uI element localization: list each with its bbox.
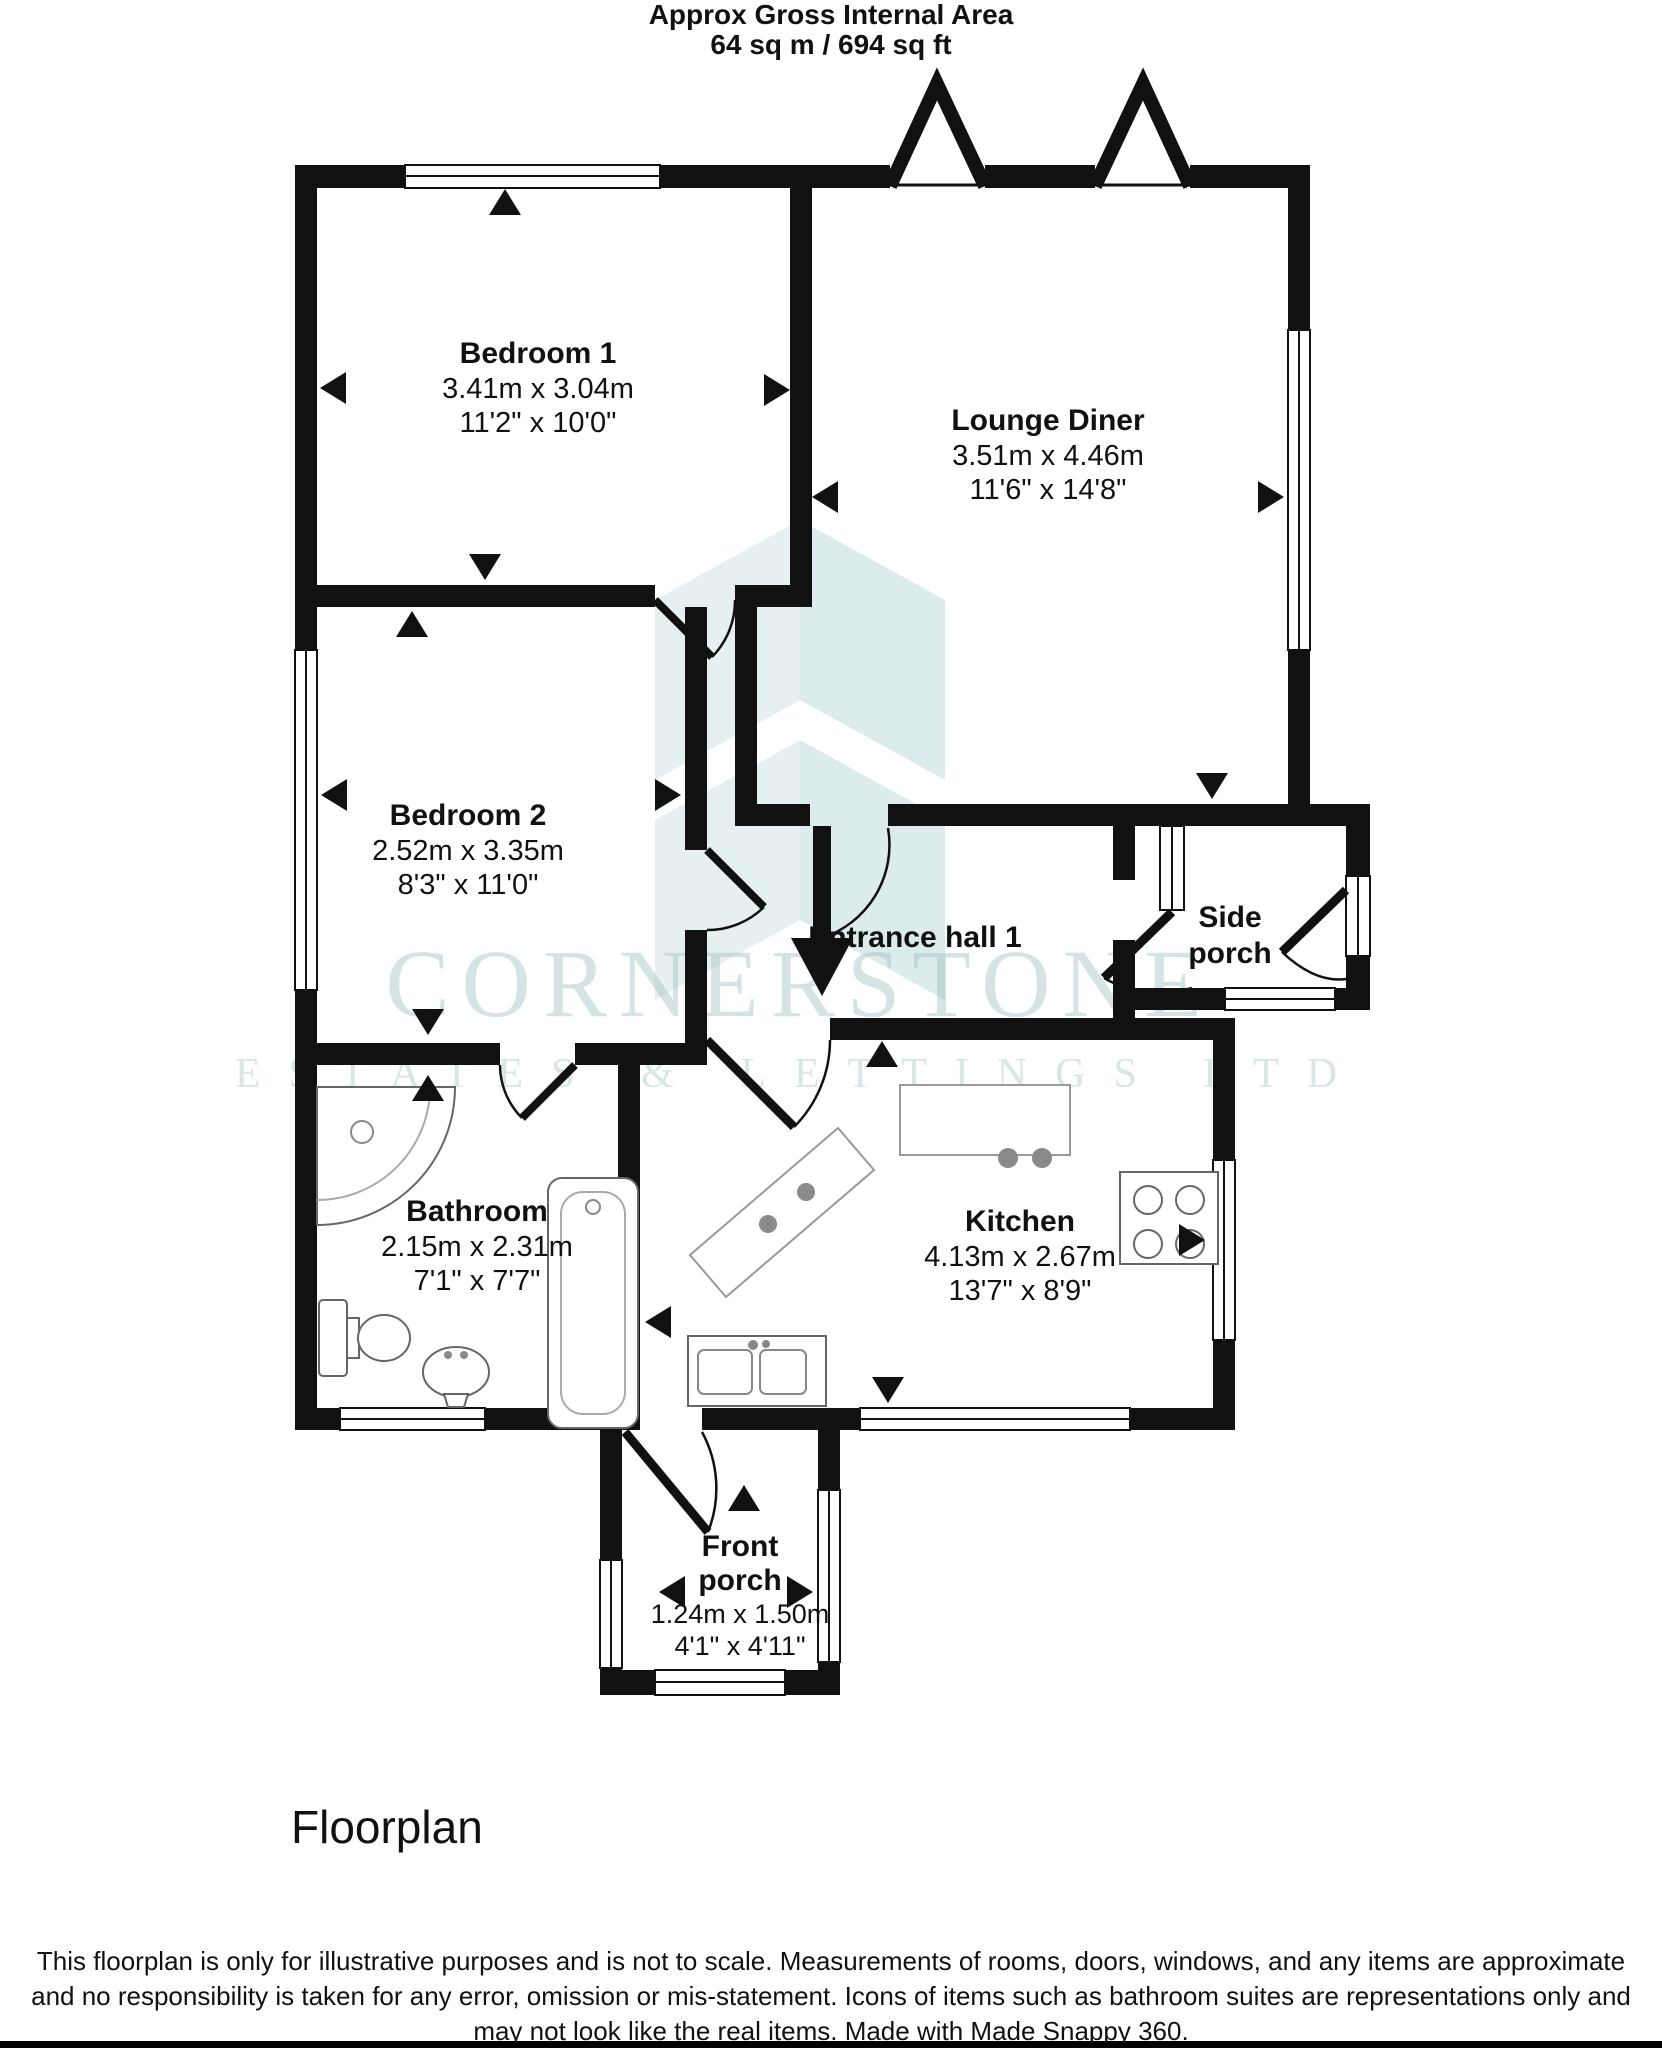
title-line1: Approx Gross Internal Area — [0, 0, 1662, 30]
floorplan-svg — [0, 0, 1662, 1730]
room-dim-metric: 1.24m x 1.50m — [651, 1598, 830, 1630]
room-label-bathroom: Bathroom 2.15m x 2.31m 7'1" x 7'7" — [381, 1194, 573, 1298]
room-name-line1: Side — [1188, 900, 1271, 936]
room-label-front-porch: Front porch 1.24m x 1.50m 4'1" x 4'11" — [651, 1530, 830, 1662]
room-name: Bathroom — [381, 1194, 573, 1230]
room-dim-metric: 2.15m x 2.31m — [381, 1230, 573, 1264]
room-name: Entrance hall 1 — [808, 920, 1021, 956]
room-label-bedroom-2: Bedroom 2 2.52m x 3.35m 8'3" x 11'0" — [372, 798, 564, 902]
room-name: Kitchen — [924, 1204, 1116, 1240]
room-label-lounge-diner: Lounge Diner 3.51m x 4.46m 11'6" x 14'8" — [951, 403, 1144, 507]
room-dim-metric: 3.51m x 4.46m — [951, 439, 1144, 473]
room-name-line2: porch — [1188, 936, 1271, 972]
floorplan-caption: Floorplan — [291, 1800, 483, 1854]
kitchen-sink-icon — [688, 1336, 826, 1406]
title-line2: 64 sq m / 694 sq ft — [0, 30, 1662, 60]
room-dim-imperial: 11'2" x 10'0" — [442, 406, 634, 440]
disclaimer-line1: This floorplan is only for illustrative … — [0, 1944, 1662, 1979]
basin-icon — [423, 1347, 489, 1407]
room-dim-imperial: 11'6" x 14'8" — [951, 473, 1144, 507]
room-name-line1: Front — [651, 1530, 830, 1564]
room-name: Bedroom 1 — [442, 336, 634, 372]
room-name: Lounge Diner — [951, 403, 1144, 439]
room-label-kitchen: Kitchen 4.13m x 2.67m 13'7" x 8'9" — [924, 1204, 1116, 1308]
bottom-bar — [0, 2041, 1662, 2048]
room-dim-metric: 4.13m x 2.67m — [924, 1240, 1116, 1274]
room-dim-metric: 2.52m x 3.35m — [372, 834, 564, 868]
room-dim-imperial: 7'1" x 7'7" — [381, 1264, 573, 1298]
room-dim-imperial: 4'1" x 4'11" — [651, 1630, 830, 1662]
room-dim-imperial: 13'7" x 8'9" — [924, 1274, 1116, 1308]
room-dim-imperial: 8'3" x 11'0" — [372, 868, 564, 902]
room-name: Bedroom 2 — [372, 798, 564, 834]
room-label-bedroom-1: Bedroom 1 3.41m x 3.04m 11'2" x 10'0" — [442, 336, 634, 440]
room-label-entrance-hall: Entrance hall 1 — [808, 920, 1021, 956]
room-name-line2: porch — [651, 1564, 830, 1598]
room-dim-metric: 3.41m x 3.04m — [442, 372, 634, 406]
hob-icon — [1120, 1172, 1218, 1264]
page-title: Approx Gross Internal Area 64 sq m / 694… — [0, 0, 1662, 60]
disclaimer-line2: and no responsibility is taken for any e… — [0, 1979, 1662, 2014]
kitchen-worktop — [690, 1128, 874, 1297]
room-label-side-porch: Side porch — [1188, 900, 1271, 972]
disclaimer-text: This floorplan is only for illustrative … — [0, 1944, 1662, 2049]
kitchen-counter — [900, 1085, 1070, 1168]
toilet-icon — [319, 1300, 410, 1376]
